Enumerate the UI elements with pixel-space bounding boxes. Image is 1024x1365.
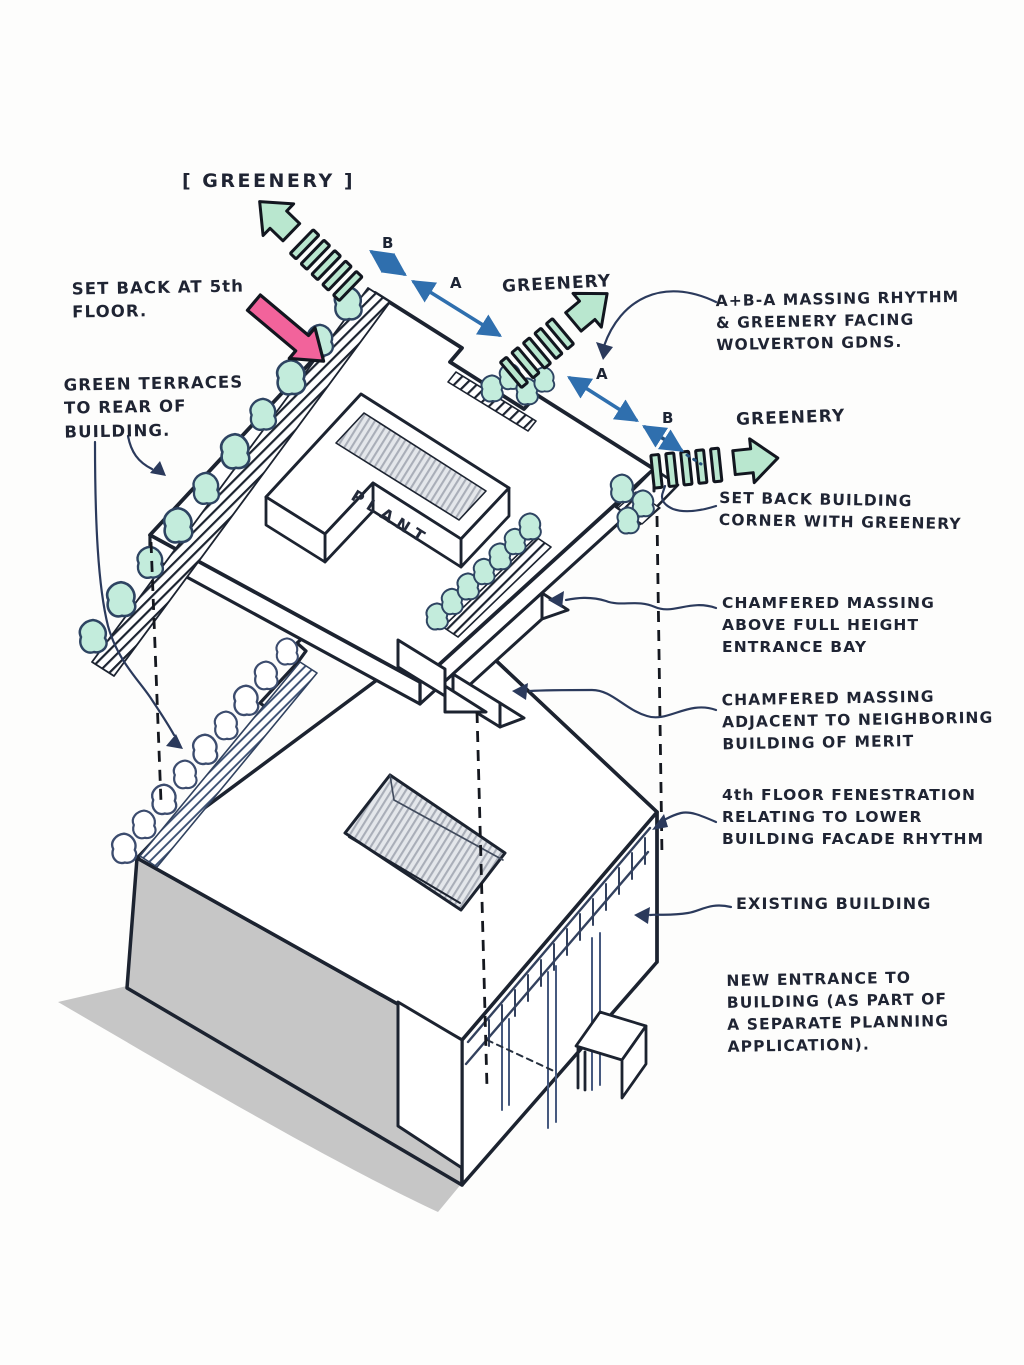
annotation-fourth-floor: 4th FLOOR FENESTRATION RELATING TO LOWER… (722, 784, 984, 850)
annotation-existing-building: EXISTING BUILDING (736, 893, 932, 916)
annotation-line: GREEN TERRACES (63, 370, 243, 397)
annotation-chamfered-adjacent: CHAMFERED MASSING ADJACENT TO NEIGHBORIN… (721, 685, 994, 756)
label-greenery-right: GREENERY (736, 404, 846, 432)
annotation-line: CHAMFERED MASSING (722, 592, 935, 614)
leader-chamfered-adjacent (530, 690, 716, 717)
dim-a2 (570, 378, 636, 420)
annotation-line: APPLICATION). (727, 1032, 949, 1058)
sketch-canvas (0, 0, 1024, 1365)
annotation-line: SET BACK AT 5th (72, 275, 245, 301)
dim-label-b1: B (382, 234, 393, 252)
dim-b1 (372, 252, 404, 274)
annotation-chamfered-above: CHAMFERED MASSING ABOVE FULL HEIGHT ENTR… (722, 592, 935, 658)
annotation-line: EXISTING BUILDING (736, 893, 932, 916)
annotation-line: BUILDING FACADE RHYTHM (722, 828, 984, 850)
annotation-set-back-5th: SET BACK AT 5th FLOOR. (72, 275, 245, 325)
leader-massing-rhythm (604, 291, 716, 346)
annotation-set-back-corner: SET BACK BUILDING CORNER WITH GREENERY (719, 487, 963, 535)
existing-building-mass (127, 614, 657, 1185)
label-greenery-top: [ GREENERY ] (182, 168, 355, 195)
leader-existing-building (650, 906, 731, 915)
dim-label-a2: A (596, 365, 608, 383)
annotation-line: A+B-A MASSING RHYTHM (715, 286, 959, 312)
annotation-line: ABOVE FULL HEIGHT (722, 614, 935, 636)
annotation-line: FLOOR. (72, 298, 245, 324)
massing-sketch-page: [ GREENERY ] SET BACK AT 5th FLOOR. GREE… (0, 0, 1024, 1365)
annotation-line: 4th FLOOR FENESTRATION (722, 784, 984, 806)
annotation-line: A SEPARATE PLANNING (727, 1010, 949, 1036)
dim-b2 (645, 427, 681, 450)
annotation-line: TO REAR OF (64, 394, 244, 421)
leader-chamfered-above (566, 598, 716, 609)
annotation-line: BUILDING. (64, 417, 244, 444)
leader-fourth-floor (664, 812, 716, 822)
dim-label-b2: B (662, 409, 673, 427)
dim-label-a1: A (450, 274, 462, 292)
annotation-line: CORNER WITH GREENERY (719, 509, 962, 535)
annotation-massing-rhythm: A+B-A MASSING RHYTHM & GREENERY FACING W… (715, 286, 960, 356)
annotation-line: ENTRANCE BAY (722, 636, 935, 658)
annotation-line: RELATING TO LOWER (722, 806, 984, 828)
annotation-new-entrance: NEW ENTRANCE TO BUILDING (AS PART OF A S… (726, 966, 949, 1058)
annotation-green-terraces: GREEN TERRACES TO REAR OF BUILDING. (63, 370, 244, 443)
greenery-arrow-top-left (244, 186, 365, 305)
annotation-line: WOLVERTON GDNS. (716, 330, 960, 356)
